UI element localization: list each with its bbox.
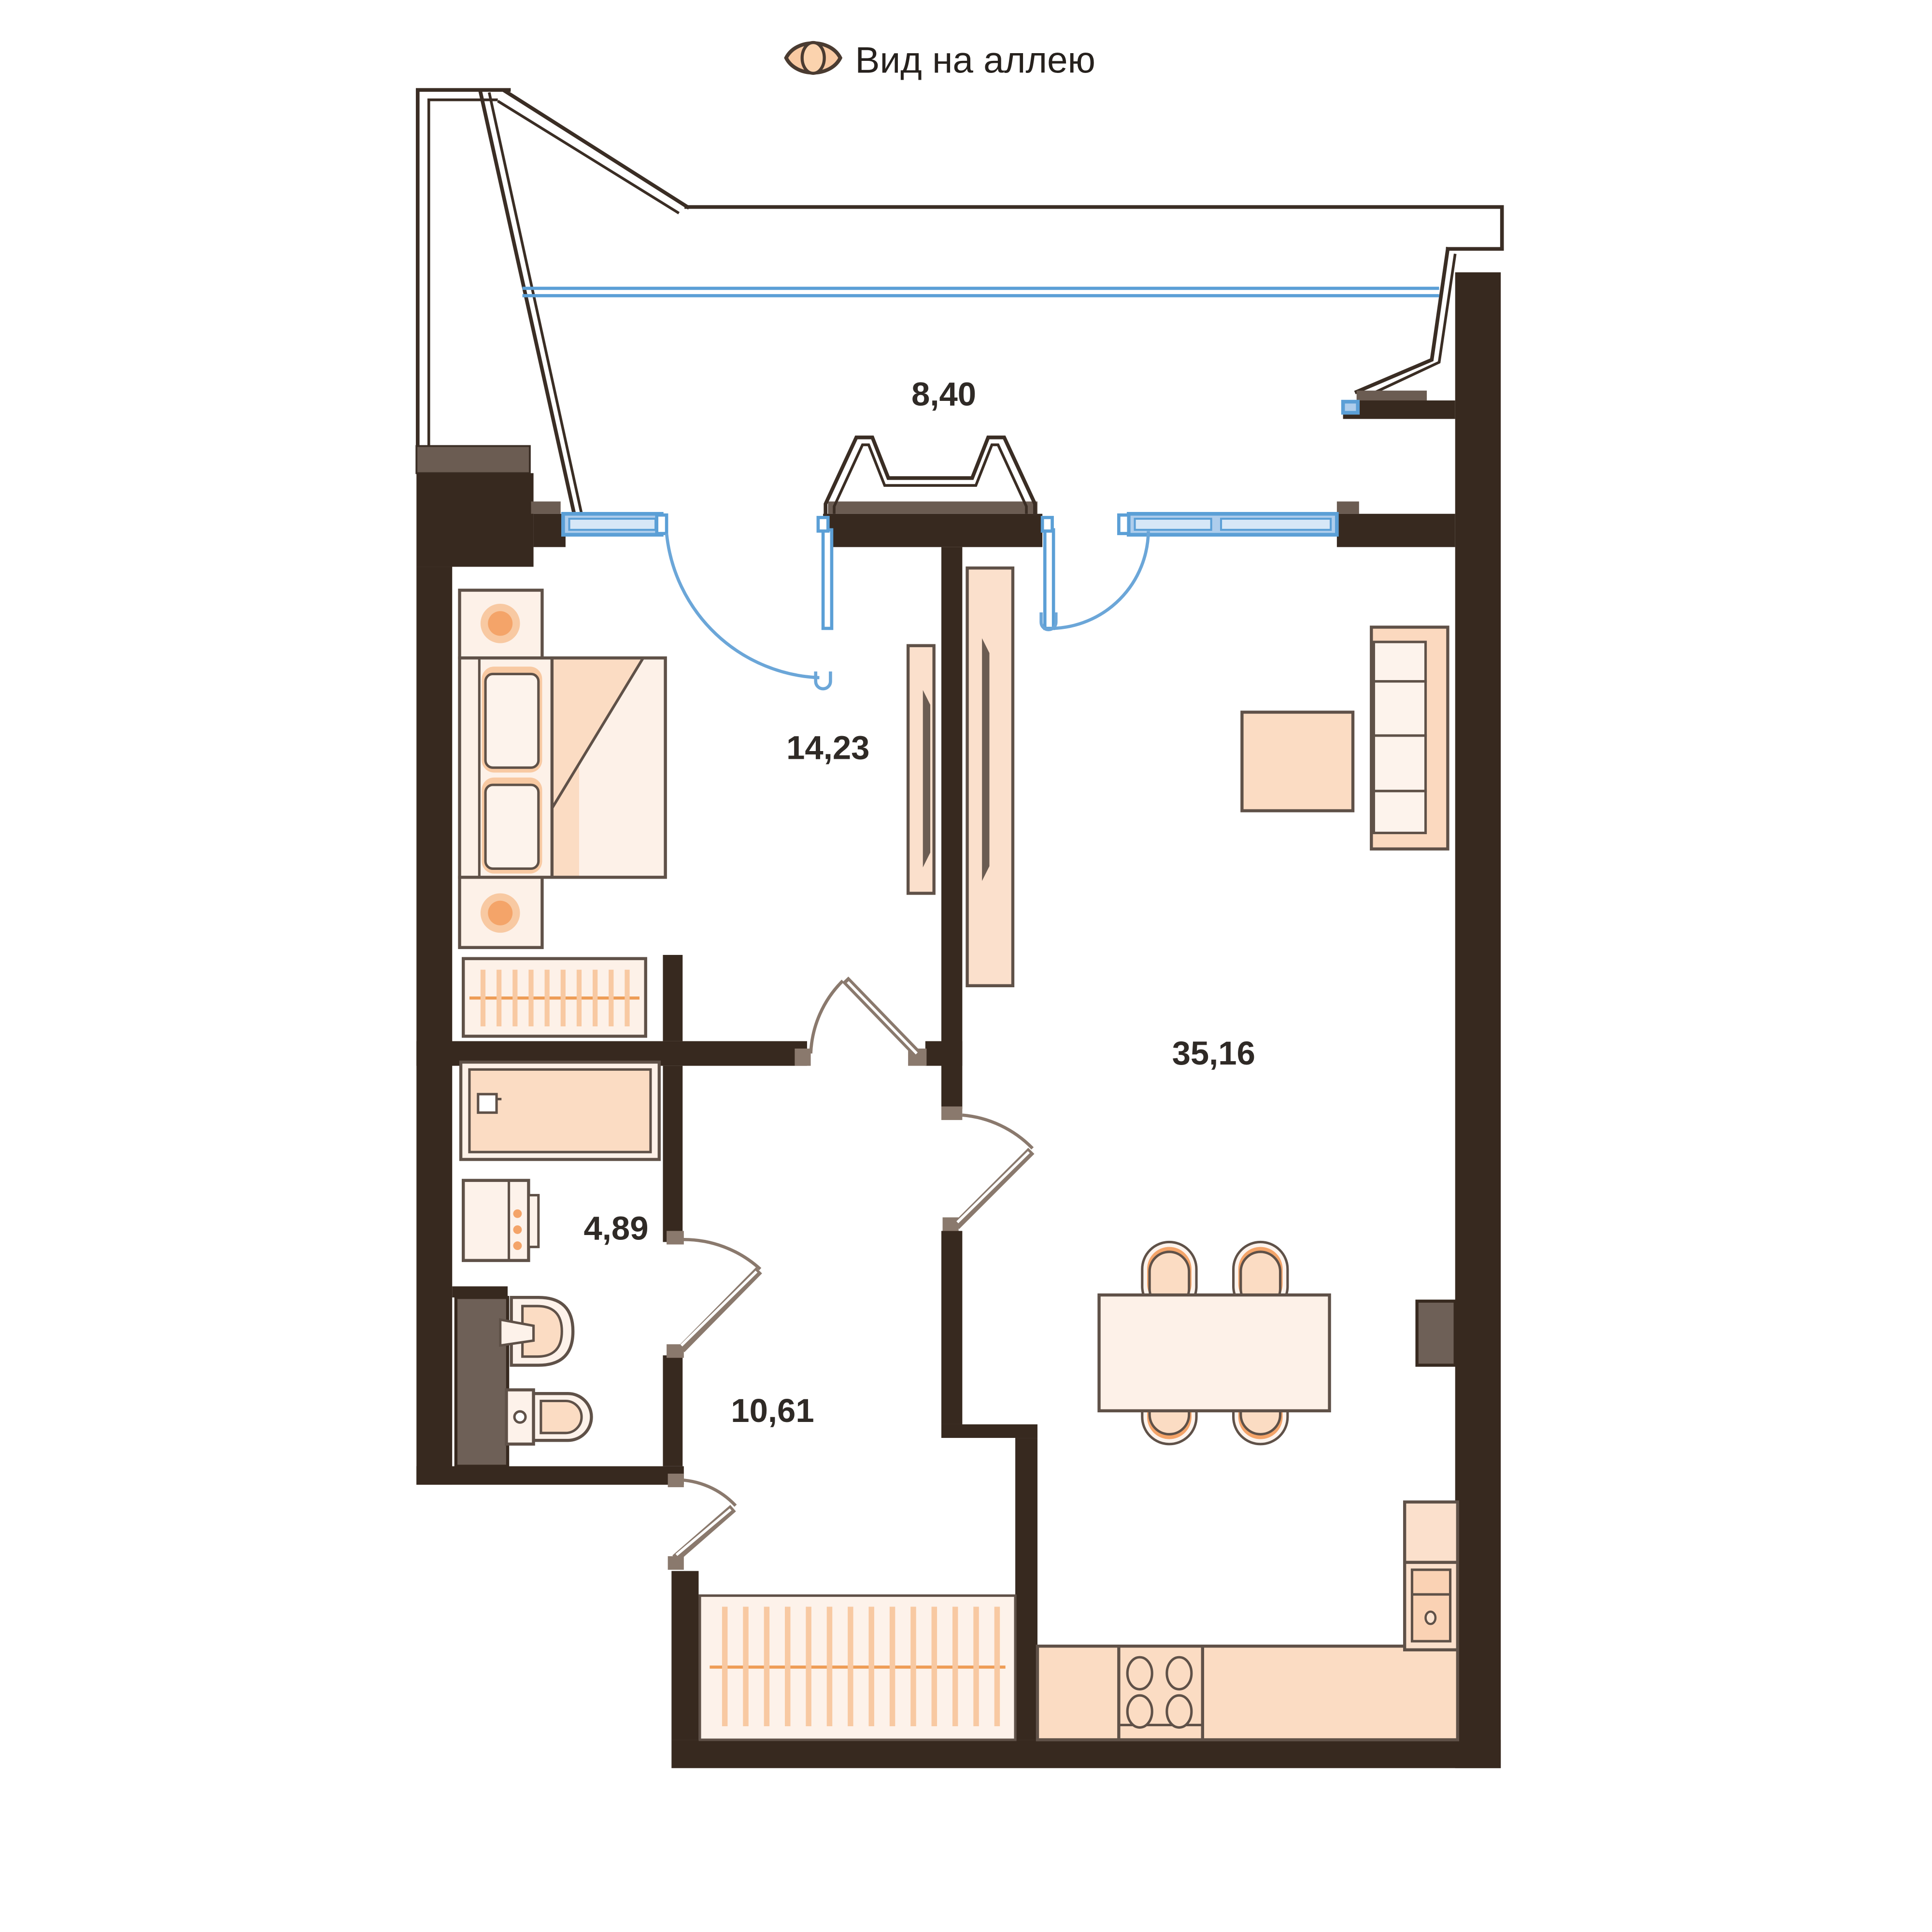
wash-basin (500, 1297, 573, 1365)
sofa-cushion (1374, 682, 1425, 736)
pillow (485, 785, 539, 868)
view-direction-header: Вид на аллею (786, 40, 1095, 81)
hallway-closet (700, 1596, 1015, 1740)
pillow (485, 674, 539, 767)
dining-set (1099, 1242, 1330, 1444)
door-hinge-icon (818, 517, 828, 531)
balcony-bay-sill (828, 501, 1037, 514)
wall-sill-top-right (1357, 391, 1427, 402)
window-living (1119, 514, 1337, 535)
balcony-slant-right-b (1360, 254, 1455, 399)
facade-outline (418, 90, 1502, 514)
room-area-balcony: 8,40 (911, 375, 976, 412)
wall-corner-top-right (1343, 400, 1455, 419)
door-catch-icon (816, 671, 831, 689)
window-bedroom (563, 514, 667, 535)
window-sill-left (531, 501, 560, 514)
door-leaf[interactable] (823, 530, 832, 628)
wall-entry-lower (671, 1571, 698, 1740)
room-area-hallway: 10,61 (731, 1392, 814, 1429)
door-bathroom[interactable] (667, 1231, 760, 1358)
view-direction-label: Вид на аллею (855, 40, 1095, 81)
door-living[interactable] (941, 1107, 1033, 1231)
wall-wc-bottom (416, 1466, 684, 1485)
wall-shaft-cap (452, 1286, 508, 1297)
toilet (506, 1390, 591, 1444)
burner-icon (1127, 1695, 1152, 1727)
wall-center-upper (941, 547, 962, 1109)
balcony-slant-right-a (1357, 249, 1448, 392)
blanket (552, 658, 666, 877)
burner-icon (1167, 1695, 1192, 1727)
bedroom-furniture (460, 590, 934, 1036)
kitchen (1037, 1502, 1458, 1740)
window-pivot-icon (657, 515, 667, 533)
door-entry[interactable] (668, 1474, 736, 1570)
wall-hall-kitchen-band (941, 1424, 1037, 1438)
balcony-parapet-outer-left (418, 90, 509, 446)
balcony-slant-shallow-a (505, 91, 688, 207)
burner-icon (1167, 1657, 1192, 1689)
wardrobe-bedroom (463, 959, 646, 1037)
room-area-bathroom: 4,89 (583, 1209, 648, 1247)
wall-pier-left (534, 514, 566, 547)
wardrobe-column-living (967, 568, 1013, 986)
wall-bath-hall-upper (663, 1066, 682, 1242)
washing-machine (463, 1180, 539, 1261)
wall-bath-hall-lower (663, 1355, 682, 1466)
wall-right (1455, 272, 1501, 1768)
kitchen-sink-unit (1405, 1502, 1458, 1650)
sofa-cushion (1374, 736, 1425, 791)
sofa-cushion (1374, 642, 1425, 682)
door-leaf[interactable] (1045, 530, 1053, 628)
wall-corner-top-left (416, 473, 533, 567)
wall-left (416, 567, 452, 1485)
dining-table (1099, 1295, 1330, 1411)
room-area-bedroom: 14,23 (786, 729, 869, 766)
duct-shaft-living (1417, 1301, 1455, 1365)
sofa (1371, 627, 1448, 849)
room-area-living: 35,16 (1172, 1035, 1255, 1072)
wall-stub-bedroom (663, 955, 682, 1041)
tub-faucet-icon (478, 1094, 497, 1112)
balcony-door-bedroom[interactable] (667, 517, 832, 689)
wall-bottom (671, 1740, 1501, 1768)
balcony-slant-shallow-b (498, 101, 679, 213)
living-furniture (967, 568, 1448, 1444)
interior-doors (667, 980, 1033, 1570)
balcony-parapet-inner-left (429, 100, 498, 446)
wall-pier-right (1337, 514, 1455, 547)
facade-top-line (686, 207, 1502, 248)
floor-plan: Вид на аллею (0, 0, 1932, 1932)
eye-pupil-icon (802, 43, 824, 73)
wall-center-lower (941, 1231, 962, 1424)
door-hinge-icon (1042, 517, 1052, 531)
window-sill-right (1337, 501, 1359, 514)
flush-button-icon (514, 1411, 526, 1422)
window-fragment-right (1343, 402, 1358, 413)
coffee-table (1242, 712, 1353, 810)
wall-balcony-bay (823, 514, 1042, 547)
door-bedroom[interactable] (795, 980, 926, 1066)
wall-sill-top-left (416, 446, 530, 473)
drain-icon (1426, 1612, 1435, 1624)
wall-kitchen-left (1015, 1438, 1037, 1740)
kitchen-counter (1037, 1646, 1458, 1740)
sink-basin (1412, 1570, 1450, 1641)
burner-icon (1127, 1657, 1152, 1689)
window-pivot-icon (1119, 515, 1128, 533)
wardrobe-column-bedroom (908, 646, 934, 894)
bathtub (461, 1062, 659, 1160)
sofa-cushion (1374, 791, 1425, 833)
double-bed (460, 658, 666, 877)
